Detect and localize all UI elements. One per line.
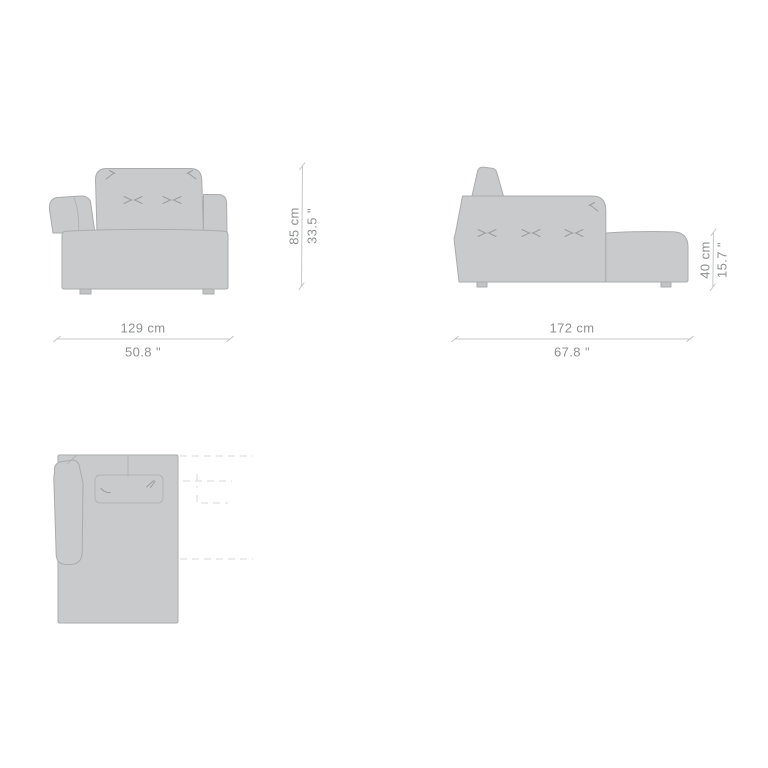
side-foot-left (477, 282, 487, 287)
front-seat-base (62, 229, 228, 289)
side-seat-height-in-label: 15.7 " (715, 242, 730, 278)
top-view-drawing (40, 445, 270, 640)
ghost-pillow-hook (197, 495, 228, 503)
front-foot-left (80, 289, 91, 294)
top-armrest (54, 460, 83, 564)
front-view-drawing (40, 152, 332, 372)
side-length-cm-label: 172 cm (549, 321, 594, 336)
top-view (40, 445, 270, 640)
front-view: 129 cm 50.8 " 85 cm 33.5 " (40, 152, 332, 372)
top-pillow (95, 475, 163, 503)
front-foot-right (203, 289, 214, 294)
front-width-cm-label: 129 cm (120, 321, 165, 336)
side-seat-height-cm-label: 40 cm (698, 241, 713, 278)
front-right-panel (204, 195, 228, 234)
side-foot-right (661, 282, 671, 287)
side-back-section (454, 196, 606, 282)
front-armrest (49, 196, 95, 233)
dimension-drawing-canvas: 129 cm 50.8 " 85 cm 33.5 " (0, 0, 768, 768)
side-length-in-label: 67.8 " (554, 345, 590, 360)
front-height-dim-line (302, 166, 303, 286)
side-headrest (472, 167, 504, 196)
front-height-in-label: 33.5 " (305, 208, 320, 244)
front-width-in-label: 50.8 " (125, 345, 161, 360)
front-back-cushion (95, 169, 203, 234)
top-adjoining-module-ghost (180, 456, 253, 559)
front-height-cm-label: 85 cm (287, 207, 302, 244)
side-chaise-section (606, 231, 688, 282)
side-seat-height-dim-line (713, 232, 714, 287)
side-view: 172 cm 67.8 " 40 cm 15.7 " (440, 152, 762, 372)
